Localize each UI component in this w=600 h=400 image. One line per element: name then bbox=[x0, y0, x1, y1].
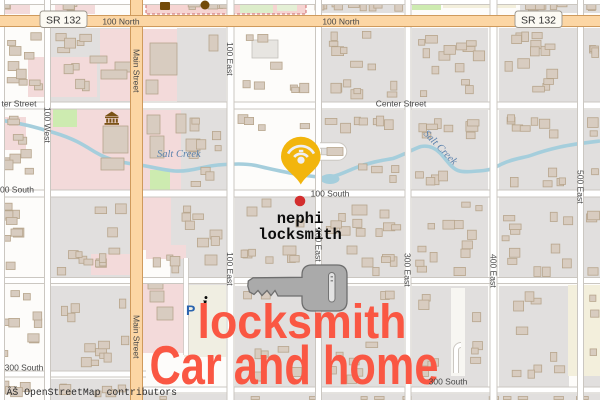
svg-text:locksmith: locksmith bbox=[258, 226, 342, 244]
svg-text:100 South: 100 South bbox=[311, 189, 350, 199]
svg-text:SR 132: SR 132 bbox=[46, 15, 81, 27]
svg-text:Salt Creek: Salt Creek bbox=[157, 149, 201, 160]
svg-text:00 South: 00 South bbox=[0, 185, 34, 195]
svg-text:300 South: 300 South bbox=[5, 363, 44, 373]
svg-text:400 East: 400 East bbox=[489, 254, 499, 288]
svg-text:ÂŠ OpenStreetMap contributors: ÂŠ OpenStreetMap contributors bbox=[7, 387, 178, 398]
svg-text:ter Street: ter Street bbox=[2, 99, 38, 109]
svg-text:P: P bbox=[186, 302, 195, 318]
svg-text:100 East: 100 East bbox=[225, 42, 235, 76]
svg-text:300 South: 300 South bbox=[429, 377, 468, 387]
svg-text:Main Street: Main Street bbox=[132, 49, 142, 93]
svg-text:Center Street: Center Street bbox=[376, 99, 427, 109]
svg-text:Car and home: Car and home bbox=[150, 334, 439, 396]
svg-text:100 North: 100 North bbox=[322, 17, 360, 27]
svg-text:100 North: 100 North bbox=[102, 17, 140, 27]
svg-text:500 East: 500 East bbox=[576, 170, 586, 204]
svg-text:100 West: 100 West bbox=[43, 107, 53, 143]
svg-text:SR 132: SR 132 bbox=[521, 15, 556, 27]
svg-text:Main Street: Main Street bbox=[132, 315, 142, 359]
svg-text:100 East: 100 East bbox=[225, 252, 235, 286]
svg-text:300 East: 300 East bbox=[403, 253, 413, 287]
